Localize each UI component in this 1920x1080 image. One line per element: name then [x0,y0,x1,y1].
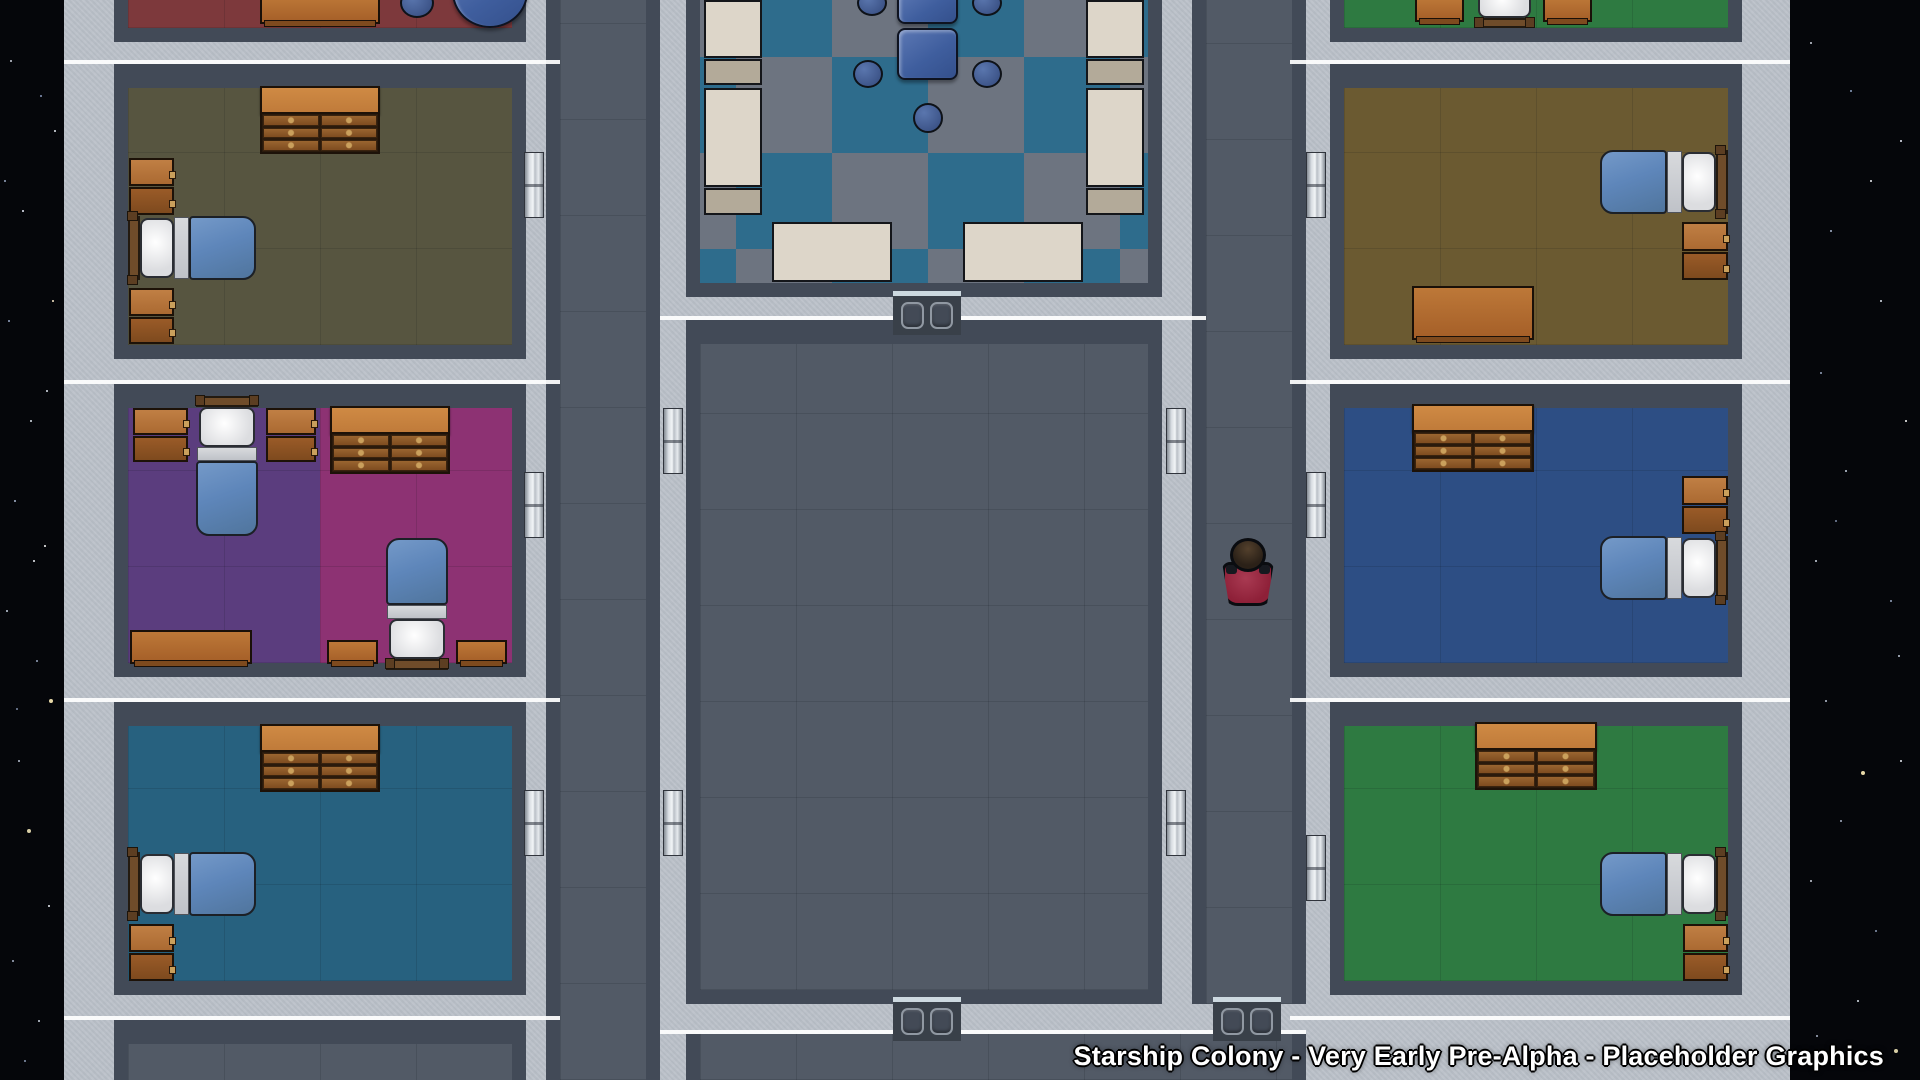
stool[interactable] [913,103,943,133]
double-door[interactable] [893,997,961,1041]
nightstand-pair[interactable] [129,924,174,981]
wall-highlight [1290,60,1790,64]
bed[interactable] [128,216,256,280]
desk[interactable] [1412,286,1534,340]
dining-table[interactable] [897,0,958,24]
game-viewport: Starship Colony - Very Early Pre-Alpha -… [0,0,1920,1080]
stool[interactable] [972,60,1002,88]
wall-highlight [1290,380,1790,384]
bedroom-navy [1330,384,1742,677]
nightstand-pair[interactable] [1682,222,1728,280]
wall-highlight [64,698,560,702]
fridge[interactable] [1086,88,1144,187]
wall-highlight [660,1030,1306,1034]
dining-table[interactable] [897,28,958,80]
nightstand-pair[interactable] [1683,924,1728,981]
fridge[interactable] [1086,0,1144,58]
counter[interactable] [704,59,762,85]
table[interactable] [1415,0,1464,22]
bed[interactable] [1600,150,1728,214]
colonist-head [1230,538,1266,572]
stool[interactable] [400,0,434,18]
dresser[interactable] [330,406,450,474]
dresser[interactable] [260,724,380,792]
door[interactable] [1306,835,1326,901]
door[interactable] [663,408,683,474]
bedroom-brown [1330,64,1742,359]
small-table[interactable] [327,640,378,664]
mess-hall [686,0,1162,297]
bed[interactable] [1600,852,1728,916]
nightstand-pair[interactable] [129,288,174,344]
dresser[interactable] [260,86,380,154]
wall-highlight [1290,698,1790,702]
counter[interactable] [704,188,762,215]
small-table[interactable] [456,640,507,664]
double-door[interactable] [1213,997,1281,1041]
door[interactable] [1166,408,1186,474]
starfield-right [0,0,2,2]
stool[interactable] [857,0,887,16]
bed[interactable] [196,396,258,536]
bedroom-green-partial [1330,0,1742,42]
dresser[interactable] [1475,722,1597,790]
corridor-east [1192,0,1306,1004]
door[interactable] [1306,152,1326,218]
bedroom-red-partial [114,0,526,42]
stool[interactable] [853,60,883,88]
bed[interactable] [128,852,256,916]
bed-end[interactable] [1475,0,1534,28]
fridge[interactable] [704,88,762,187]
room-lower-left-partial [114,1020,526,1080]
bedroom-green [1330,702,1742,995]
bed[interactable] [1600,536,1728,600]
watermark-text: Starship Colony - Very Early Pre-Alpha -… [1074,1041,1884,1072]
desk[interactable] [130,630,252,664]
door[interactable] [524,152,544,218]
bedroom-teal [114,702,526,995]
double-door[interactable] [893,291,961,335]
bedroom-olive [114,64,526,359]
door[interactable] [524,790,544,856]
table[interactable] [260,0,380,24]
dresser[interactable] [1412,404,1534,472]
wall-highlight [64,380,560,384]
bedroom-purple-magenta [114,384,526,677]
counter[interactable] [1086,59,1144,85]
door[interactable] [1306,472,1326,538]
door[interactable] [663,790,683,856]
wall-highlight [64,1016,560,1020]
wall-highlight [1290,1016,1790,1020]
door[interactable] [1166,790,1186,856]
colonist[interactable] [1222,538,1274,606]
serving-table[interactable] [772,222,892,282]
counter[interactable] [1086,188,1144,215]
nightstand-pair[interactable] [1682,476,1728,534]
nightstand-pair[interactable] [129,158,174,215]
table[interactable] [1543,0,1592,22]
round-table[interactable] [452,0,528,28]
door[interactable] [524,472,544,538]
wall-highlight [64,60,560,64]
nightstand[interactable] [266,408,316,462]
nightstand[interactable] [133,408,188,462]
corridor-west [546,0,660,1080]
serving-table[interactable] [963,222,1083,282]
fridge[interactable] [704,0,762,58]
bed[interactable] [386,538,448,670]
stool[interactable] [972,0,1002,16]
central-hall [686,320,1162,1004]
